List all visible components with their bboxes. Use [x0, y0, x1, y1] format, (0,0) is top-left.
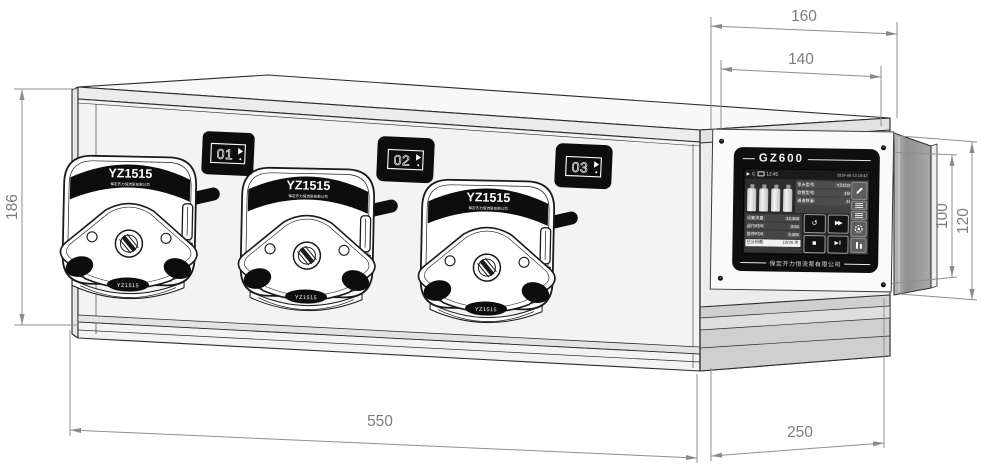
- settings-button[interactable]: [851, 221, 867, 237]
- stat-label: 已分份数:: [746, 240, 764, 244]
- divider: [808, 159, 871, 161]
- badge-number: 01: [216, 146, 233, 163]
- start-pause-button[interactable]: ▶‖: [827, 235, 849, 254]
- bottle-icon: [771, 189, 780, 212]
- transport-buttons: ↺ ▶▶ ■ ▶‖: [803, 214, 849, 254]
- badge-03: 03: [554, 143, 613, 189]
- dim-label-186: 186: [4, 194, 21, 220]
- company-name: 保定齐力恒流泵有限公司: [769, 258, 841, 268]
- touchscreen[interactable]: ▶ C 12:45 2019-06-13 10:42: [742, 168, 870, 256]
- bottle-icon: [783, 189, 792, 212]
- run-stats-box: 设置流量: 12.3ml 运行时间: 3.5s 暂停时间: 5.30s: [744, 213, 802, 253]
- badge-01: 01: [201, 131, 255, 176]
- panel-footer: 保定齐力恒流泵有限公司: [732, 254, 878, 272]
- screw-icon: [719, 139, 724, 144]
- preset-list-button-2[interactable]: [851, 211, 867, 221]
- pump-info-box: 泵头型号: YZ1515 软管型号: 15# 通道数量: 10: [795, 180, 855, 214]
- refresh-icon: C: [752, 171, 755, 176]
- dim-label-100: 100: [934, 203, 951, 229]
- stat-row-highlight: 已分份数: 15/20 次: [745, 239, 800, 247]
- divider: [844, 263, 870, 264]
- pencil-icon: [855, 186, 864, 195]
- screw-icon: [881, 145, 886, 150]
- side-base-band: [700, 295, 890, 371]
- technical-drawing: YZ1515 保定齐力恒流泵有限公司 YZ1515: [0, 0, 990, 473]
- panel-header: GZ600: [734, 147, 880, 169]
- dim-label-250: 250: [787, 424, 813, 441]
- stat-label: 设置流量:: [747, 216, 765, 220]
- calibration-button[interactable]: [850, 237, 866, 253]
- status-time: 12:45: [766, 171, 778, 176]
- screw-icon: [718, 276, 723, 281]
- panel-bezel: GZ600 ▶ C 12:45 2019-06-13 10:42: [732, 147, 880, 273]
- panel-title: GZ600: [759, 152, 804, 165]
- info-label: 通道数量:: [797, 199, 815, 203]
- stat-value: 3.5s: [790, 225, 800, 229]
- stat-row: 设置流量: 12.3ml: [746, 214, 801, 222]
- preset-list-button-1[interactable]: [851, 200, 867, 210]
- list-icon: [855, 203, 863, 208]
- dim-label-120: 120: [955, 208, 972, 234]
- info-label: 软管型号:: [797, 191, 815, 195]
- info-row: 通道数量: 10: [796, 197, 853, 205]
- gear-icon: [854, 224, 864, 234]
- dim-label-160: 160: [791, 8, 817, 25]
- back-refill-button[interactable]: ↺: [804, 214, 826, 233]
- bottle-icons: [745, 179, 795, 213]
- stat-value: 15/20 次: [782, 241, 800, 245]
- stat-label: 暂停时间:: [747, 232, 765, 236]
- info-row: 泵头型号: YZ1515: [796, 181, 853, 189]
- divider: [740, 262, 766, 263]
- badge-number: 02: [393, 152, 410, 169]
- badge-number: 03: [571, 159, 588, 176]
- list-icon: [855, 213, 863, 218]
- info-row: 软管型号: 15#: [796, 189, 853, 197]
- control-panel: GZ600 ▶ C 12:45 2019-06-13 10:42: [710, 129, 895, 293]
- dim-label-140: 140: [788, 51, 814, 68]
- bottle-icon: [759, 188, 768, 211]
- screw-icon: [881, 282, 886, 287]
- badge-02: 02: [376, 136, 435, 183]
- stat-row: 运行时间: 3.5s: [746, 222, 801, 230]
- edit-button[interactable]: [851, 182, 867, 200]
- dim-label-550: 550: [367, 413, 393, 430]
- stop-button[interactable]: ■: [803, 235, 825, 254]
- play-icon: ▶: [747, 171, 751, 177]
- stat-row: 暂停时间: 5.30s: [746, 231, 801, 239]
- side-buttons: [849, 181, 868, 254]
- test-tubes-icon: [854, 241, 863, 250]
- status-datetime: 2019-06-13 10:42: [837, 173, 868, 178]
- bottle-icon: [747, 188, 756, 211]
- info-label: 泵头型号:: [797, 182, 815, 186]
- stat-value: 5.30s: [787, 233, 799, 237]
- usb-icon: [757, 171, 764, 176]
- stat-label: 运行时间:: [747, 224, 765, 228]
- stat-value: 12.3ml: [785, 216, 800, 220]
- divider: [743, 158, 755, 159]
- fast-forward-button[interactable]: ▶▶: [827, 214, 849, 233]
